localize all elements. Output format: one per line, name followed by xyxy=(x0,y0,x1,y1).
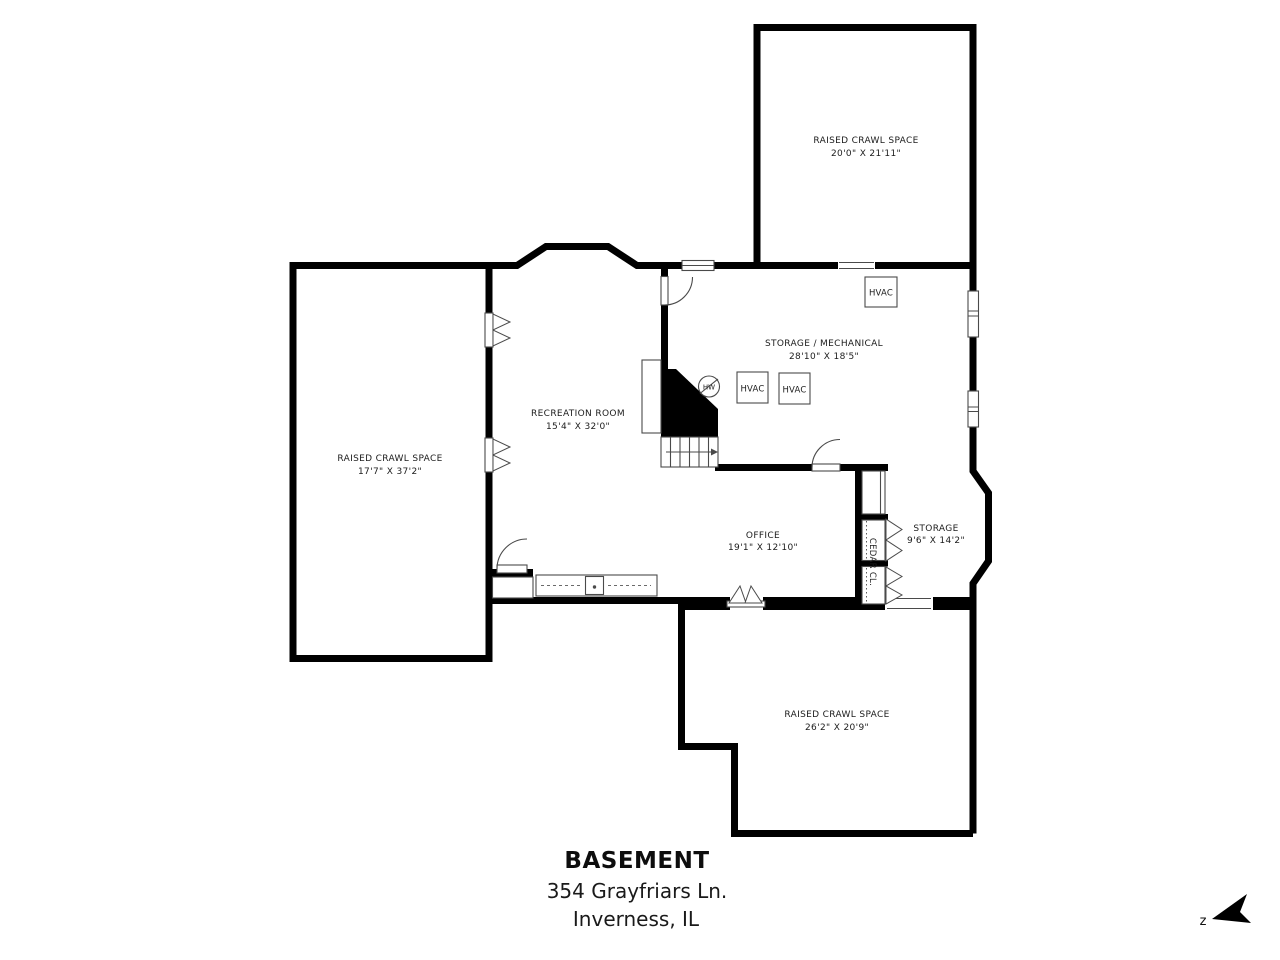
sink-icon xyxy=(586,577,604,595)
floor-plan-svg: CEDAR CL. HVAC HVAC HVAC HW xyxy=(0,0,1280,960)
room-name: RAISED CRAWL SPACE xyxy=(813,136,918,146)
north-label: z xyxy=(1200,914,1207,929)
door-icon xyxy=(812,440,840,472)
cedar-closet: CEDAR CL. xyxy=(862,471,902,604)
address-line-1: 354 Grayfriars Ln. xyxy=(547,879,728,903)
floor-plan-page: CEDAR CL. HVAC HVAC HVAC HW xyxy=(0,0,1280,960)
closet-box xyxy=(493,577,534,598)
window-icon xyxy=(682,261,714,271)
hvac-unit: HVAC xyxy=(779,373,810,404)
wall-cedar-divider-1 xyxy=(855,514,888,520)
title-block: BASEMENT 354 Grayfriars Ln. Inverness, I… xyxy=(547,848,728,931)
room-name: RECREATION ROOM xyxy=(531,409,625,419)
bifold-door-icon xyxy=(727,586,765,607)
cedar-closet-label: CEDAR CL. xyxy=(867,538,877,586)
room-dims: 28'10" X 18'5" xyxy=(789,352,859,362)
room-label-storage-mechanical: STORAGE / MECHANICAL 28'10" X 18'5" xyxy=(765,339,883,362)
window-icon xyxy=(968,291,979,337)
room-label-crawl-bottom: RAISED CRAWL SPACE 26'2" X 20'9" xyxy=(784,710,889,733)
north-arrow: z xyxy=(1200,894,1251,929)
windows xyxy=(485,261,979,473)
crawl-access-icon xyxy=(485,438,510,472)
room-dims: 17'7" X 37'2" xyxy=(358,467,422,477)
wall-crawl-top xyxy=(757,28,973,266)
room-label-crawl-left: RAISED CRAWL SPACE 17'7" X 37'2" xyxy=(337,454,442,477)
room-labels: RAISED CRAWL SPACE 20'0" X 21'11" STORAG… xyxy=(337,136,965,733)
north-arrow-icon xyxy=(1212,894,1251,923)
door-icon xyxy=(661,277,693,306)
understair-closet xyxy=(642,360,661,433)
room-label-storage: STORAGE 9'6" X 14'2" xyxy=(907,524,965,546)
room-dims: 26'2" X 20'9" xyxy=(805,723,869,733)
hvac-unit: HVAC xyxy=(737,372,768,403)
address-line-2: Inverness, IL xyxy=(573,907,700,931)
hvac-label: HVAC xyxy=(869,289,893,299)
door-icon xyxy=(497,539,527,573)
floor-title: BASEMENT xyxy=(564,848,709,874)
hvac-unit: HVAC xyxy=(865,277,897,307)
counter xyxy=(536,575,657,596)
water-heater-icon: HW xyxy=(699,376,720,397)
room-name: RAISED CRAWL SPACE xyxy=(784,710,889,720)
water-heater-label: HW xyxy=(703,384,715,392)
room-name: RAISED CRAWL SPACE xyxy=(337,454,442,464)
crawl-access-icon xyxy=(485,313,510,347)
room-name: OFFICE xyxy=(746,531,780,541)
room-name: STORAGE xyxy=(913,524,958,534)
room-name: STORAGE / MECHANICAL xyxy=(765,339,883,349)
window-icon xyxy=(968,391,979,427)
room-dims: 15'4" X 32'0" xyxy=(546,422,610,432)
room-label-crawl-top: RAISED CRAWL SPACE 20'0" X 21'11" xyxy=(813,136,918,159)
room-dims: 20'0" X 21'11" xyxy=(831,149,901,159)
room-dims: 19'1" X 12'10" xyxy=(728,543,798,553)
bifold-door-icon xyxy=(886,519,902,561)
hvac-label: HVAC xyxy=(782,386,806,396)
room-label-office: OFFICE 19'1" X 12'10" xyxy=(728,531,798,553)
wall-right-exterior xyxy=(973,262,989,834)
room-label-recreation: RECREATION ROOM 15'4" X 32'0" xyxy=(531,409,625,432)
hvac-label: HVAC xyxy=(740,385,764,395)
room-dims: 9'6" X 14'2" xyxy=(907,536,965,546)
